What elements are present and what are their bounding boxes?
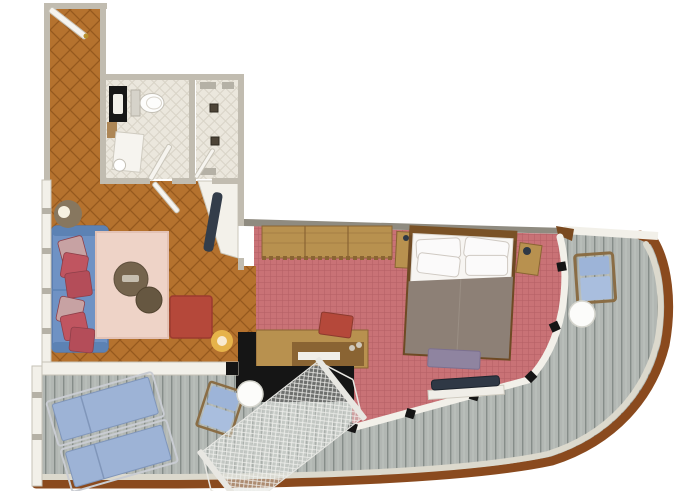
desk: [256, 330, 368, 368]
coffee-table-remote: [122, 275, 139, 282]
floor-lamp: [54, 200, 82, 228]
balcony-left-wall: [32, 366, 42, 486]
wardrobe: [262, 226, 392, 258]
coffee-table-small: [136, 287, 162, 313]
nightstand-right: [516, 243, 542, 276]
ottoman: [170, 296, 212, 338]
balcony-left-wall-post: [32, 434, 42, 440]
floor-drain: [211, 137, 219, 145]
desk-bottle: [356, 342, 362, 348]
nightstand-right-lamp: [523, 247, 531, 255]
desk-bottle: [349, 345, 355, 351]
table-lamp: [211, 330, 233, 352]
round-table: [569, 301, 595, 327]
living-room: [48, 8, 256, 364]
foot-bench: [428, 349, 481, 370]
desk-chair: [319, 312, 354, 338]
round-table: [237, 381, 263, 407]
shower-cabinet: [109, 86, 127, 122]
floor-plan: [0, 0, 680, 491]
floor-drain: [210, 104, 218, 112]
nightstand-left-lamp: [403, 235, 409, 241]
bottom-window-band: [42, 362, 238, 375]
balcony-left-wall-post: [32, 392, 42, 398]
double-bed: [403, 225, 518, 360]
bottom-window-post: [226, 362, 238, 375]
left-window-band: [42, 180, 51, 364]
floor-plan-canvas: [0, 0, 680, 491]
bathroom: [106, 79, 238, 179]
washbasin-vanity: [112, 132, 144, 174]
